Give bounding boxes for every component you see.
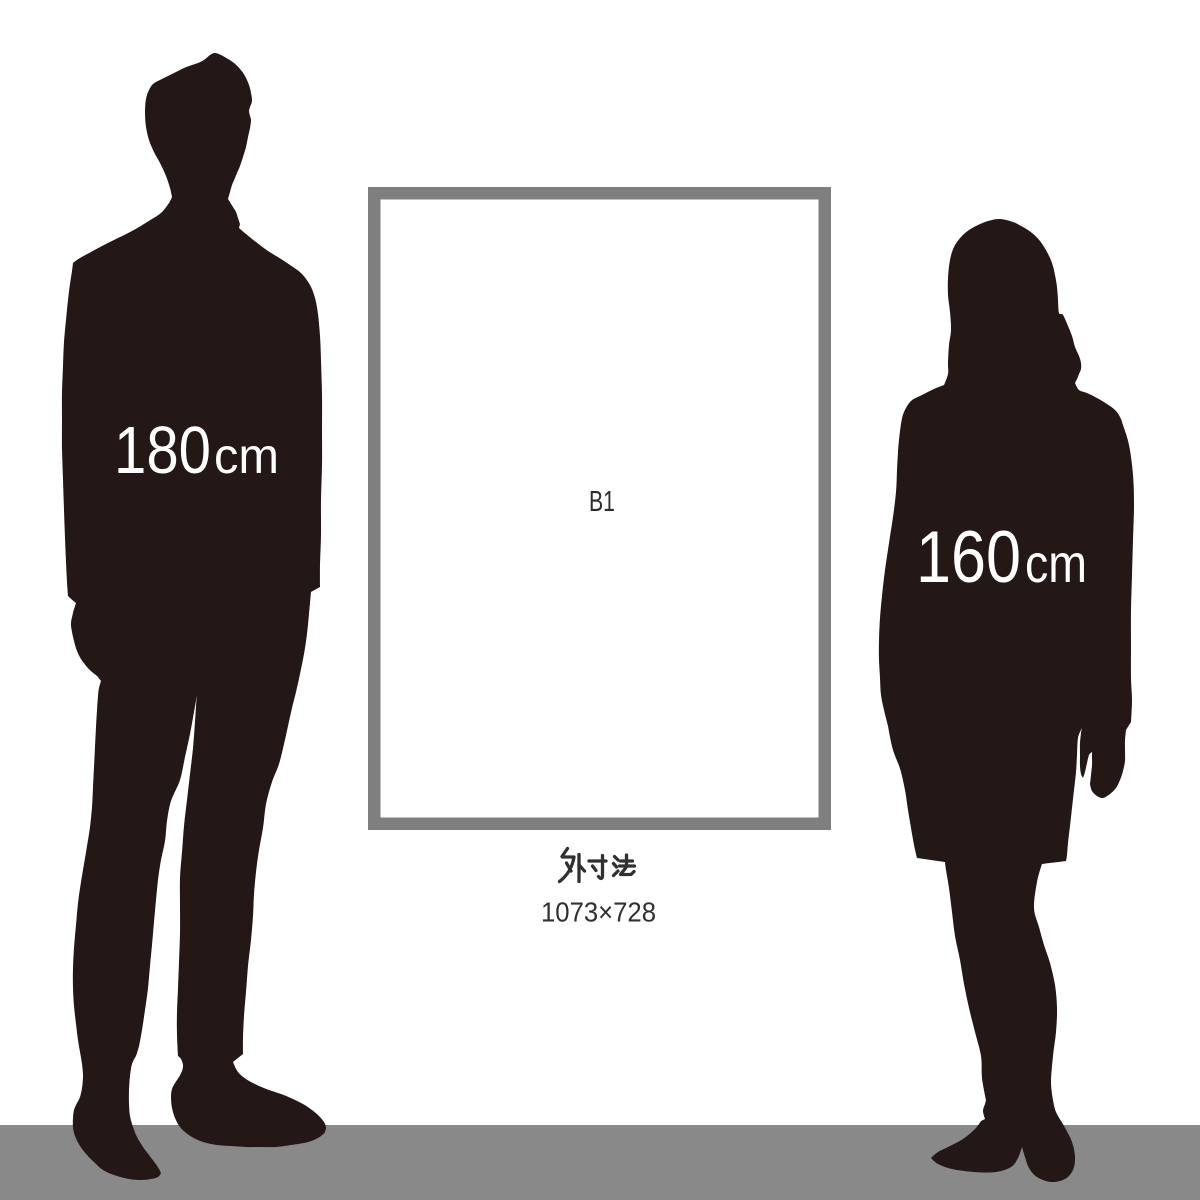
- svg-text:160: 160: [916, 517, 1021, 598]
- svg-text:1073×728: 1073×728: [541, 897, 656, 928]
- svg-text:B1: B1: [589, 486, 615, 518]
- svg-text:cm: cm: [214, 428, 279, 484]
- svg-text:cm: cm: [1025, 534, 1087, 594]
- svg-text:180: 180: [114, 413, 211, 488]
